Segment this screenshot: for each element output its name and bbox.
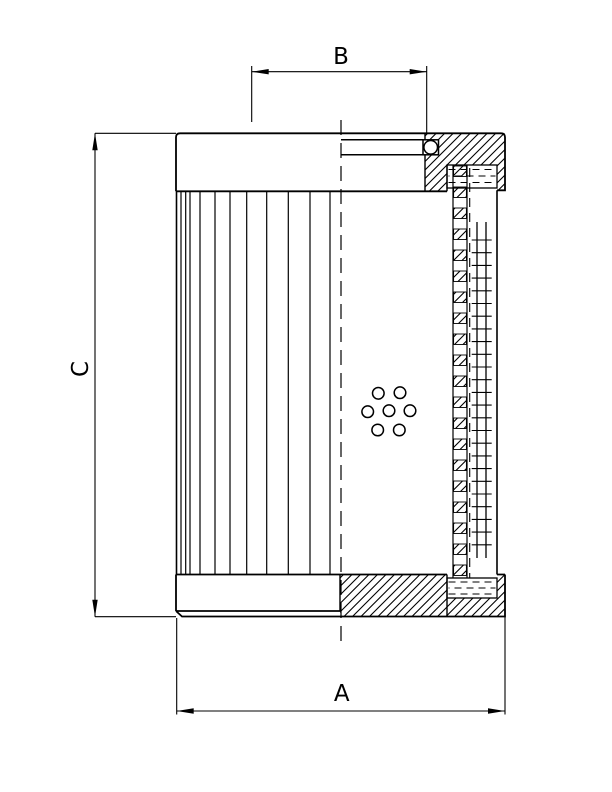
support-tube-cell <box>454 439 467 450</box>
bottom-cap-hatch-area <box>340 575 447 617</box>
pleated-filter-media <box>181 191 330 574</box>
dimension-b: B <box>252 44 427 133</box>
dimension-b-label: B <box>333 44 349 70</box>
support-tube-cell <box>454 250 467 261</box>
dimension-a-label: A <box>334 681 350 707</box>
support-tube-cell <box>454 544 467 555</box>
oring-seal <box>424 141 438 155</box>
element-body-walls <box>177 190 498 574</box>
perforation-hole <box>373 388 385 400</box>
perforation-hole <box>383 405 395 417</box>
support-tube-cell <box>454 397 467 408</box>
top-end-cap <box>176 133 505 191</box>
support-tube-cell <box>454 229 467 240</box>
perforation-hole <box>394 387 406 399</box>
support-tube-cell <box>454 334 467 345</box>
support-tube-cell <box>454 313 467 324</box>
top-cap-hatch-area <box>425 165 447 191</box>
support-tube-cell <box>454 460 467 471</box>
filter-element-technical-drawing: B C A <box>0 0 612 792</box>
bottom-end-cap <box>176 575 505 617</box>
top-cap-hatch-area <box>497 165 505 190</box>
perforation-hole <box>362 406 374 418</box>
dimension-c: C <box>68 133 176 616</box>
support-tube-cell <box>454 292 467 303</box>
perforation-hole <box>372 424 384 436</box>
support-tube-cell <box>454 418 467 429</box>
wire-mesh-screen <box>472 222 492 558</box>
support-tube-cell <box>454 355 467 366</box>
dimension-a-arrow <box>488 708 505 713</box>
support-tube-cell <box>454 523 467 534</box>
support-tube-cell <box>454 166 467 177</box>
bottom-cap-hatch-area <box>497 575 505 599</box>
support-tube-cell <box>454 187 467 198</box>
support-tube-cell <box>454 271 467 282</box>
bottom-cap-hatch-area <box>447 598 505 617</box>
perforation-hole <box>404 405 416 417</box>
dimension-b-arrow <box>410 69 427 74</box>
support-tube-cell <box>454 208 467 219</box>
support-tube-cell <box>454 502 467 513</box>
dimension-c-arrow <box>92 133 97 150</box>
support-tube-cells <box>454 166 467 597</box>
support-tube-cell <box>454 481 467 492</box>
dimension-c-arrow <box>92 600 97 617</box>
dimension-b-arrow <box>252 69 269 74</box>
drawing-page: B C A <box>0 0 612 792</box>
perforation-hole <box>394 424 406 436</box>
wire-mesh-ticks <box>472 240 492 545</box>
support-tube-cell <box>454 376 467 387</box>
support-tube-section <box>453 165 470 598</box>
support-tube-cell <box>454 565 467 576</box>
dimension-a-arrow <box>177 708 194 713</box>
dimension-c-label: C <box>68 361 94 377</box>
perforation-holes <box>362 387 416 436</box>
